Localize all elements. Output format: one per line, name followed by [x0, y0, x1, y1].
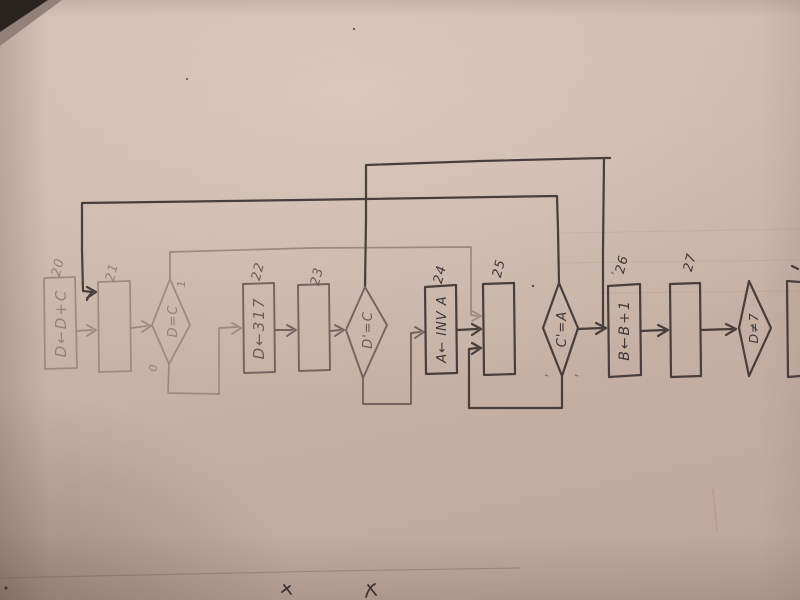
process-box-23 — [298, 284, 330, 371]
photo-of-paper: D←D+C D=C D←317 D'=C A← INV A C'=A B←B+1… — [0, 0, 800, 600]
flow-text: D←D+C D=C D←317 D'=C A← INV A C'=A B←B+1… — [49, 252, 761, 372]
diamond-d2-text: D'=C — [361, 311, 376, 349]
branch-label-0: 0 — [147, 365, 160, 372]
paper-speck — [4, 586, 7, 589]
edge-d2-b26-top — [365, 158, 610, 326]
block-28-label-tick — [792, 266, 798, 269]
block-number-26: 26 — [613, 254, 632, 276]
diamond-d4-text: D≠7 — [746, 312, 761, 343]
process-box-25 — [483, 283, 515, 375]
process-box-21 — [98, 281, 131, 372]
red-smudge-line — [713, 489, 717, 531]
process-box-27 — [670, 283, 701, 377]
block-number-20: 20 — [49, 257, 68, 279]
edge-b21-d1 — [131, 321, 151, 332]
block-number-24: 24 — [431, 264, 450, 286]
block-number-22: 22 — [249, 261, 268, 283]
edge-b26-b27 — [641, 325, 668, 336]
photo-marks — [0, 28, 717, 597]
block-number-27: 27 — [681, 252, 700, 274]
flow-nodes — [44, 266, 800, 378]
edge-b27-d4 — [701, 324, 736, 335]
edge-d3-b26 — [578, 323, 606, 334]
process-box-28-partial — [787, 281, 800, 377]
paper-speck — [353, 28, 355, 30]
diamond-d1-text: D=C — [166, 305, 181, 338]
flowchart-drawing: D←D+C D=C D←317 D'=C A← INV A C'=A B←B+1… — [0, 0, 800, 600]
diamond-d3-text: C'=A — [555, 311, 570, 347]
branch-label-1: 1 — [175, 281, 188, 288]
paper-fold-line — [0, 568, 520, 578]
stray-pen-marks — [282, 584, 376, 597]
box-26-text: B←B+1 — [617, 299, 633, 361]
block-number-25: 25 — [490, 258, 509, 280]
edge-b24-b25 — [457, 324, 481, 335]
box-20-text: D←D+C — [52, 289, 70, 358]
box-24-text: A← INV A — [435, 295, 450, 363]
box-22-text: D←317 — [250, 297, 268, 360]
block-number-21: 21 — [103, 262, 122, 284]
edge-b22-b23 — [275, 325, 296, 336]
edge-b23-d2 — [330, 325, 344, 336]
paper-speck — [532, 285, 534, 287]
edge-b20-b21 — [77, 325, 96, 336]
paper-speck — [186, 78, 188, 80]
